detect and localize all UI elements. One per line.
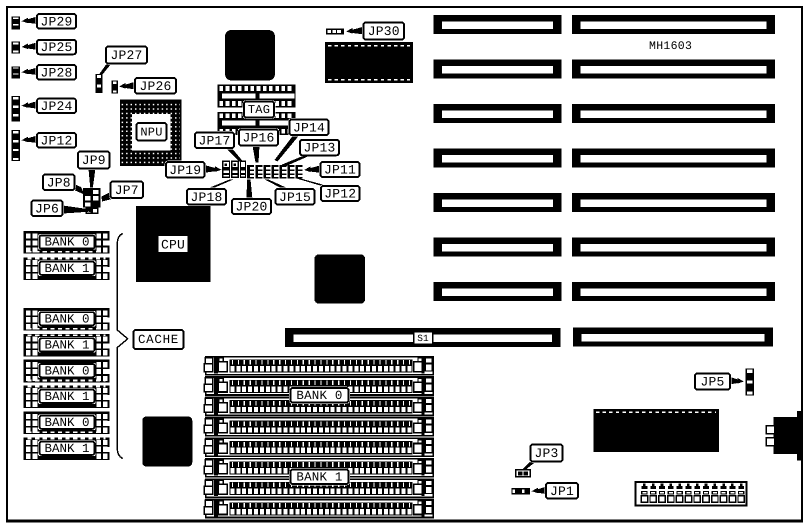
svg-text:JP12: JP12 [324, 187, 356, 202]
svg-text:NPU: NPU [140, 125, 162, 139]
svg-text:JP6: JP6 [35, 201, 59, 216]
svg-text:JP5: JP5 [700, 375, 724, 390]
svg-text:JP8: JP8 [47, 175, 71, 190]
svg-text:BANK 0: BANK 0 [44, 364, 89, 378]
svg-text:CPU: CPU [161, 237, 185, 252]
svg-text:BANK 0: BANK 0 [44, 236, 89, 250]
svg-text:JP13: JP13 [303, 141, 335, 156]
svg-text:BANK 1: BANK 1 [296, 470, 342, 484]
svg-text:JP15: JP15 [279, 190, 311, 205]
svg-text:JP29: JP29 [40, 14, 72, 29]
svg-text:CACHE: CACHE [138, 333, 179, 347]
svg-text:BANK 0: BANK 0 [296, 389, 342, 403]
svg-text:BANK 1: BANK 1 [44, 262, 89, 276]
svg-text:TAG: TAG [248, 103, 270, 117]
svg-text:JP9: JP9 [82, 153, 106, 168]
svg-text:JP14: JP14 [293, 120, 325, 135]
svg-text:S1: S1 [417, 333, 429, 344]
svg-text:JP12: JP12 [40, 133, 72, 148]
svg-text:JP18: JP18 [190, 190, 222, 205]
svg-text:JP26: JP26 [139, 79, 171, 94]
svg-text:BANK 1: BANK 1 [44, 339, 89, 353]
svg-text:BANK 0: BANK 0 [44, 416, 89, 430]
svg-text:JP19: JP19 [169, 163, 201, 178]
svg-text:JP30: JP30 [368, 24, 400, 39]
svg-text:BANK 1: BANK 1 [44, 390, 89, 404]
svg-text:JP1: JP1 [550, 484, 574, 499]
svg-text:JP3: JP3 [534, 446, 558, 461]
svg-text:JP11: JP11 [324, 163, 356, 178]
svg-text:JP17: JP17 [198, 133, 230, 148]
svg-text:JP16: JP16 [242, 131, 274, 146]
svg-text:JP24: JP24 [40, 99, 72, 114]
svg-text:JP20: JP20 [235, 200, 267, 215]
svg-text:JP28: JP28 [40, 65, 72, 80]
svg-text:BANK 0: BANK 0 [44, 313, 89, 327]
svg-text:BANK 1: BANK 1 [44, 442, 89, 456]
svg-text:JP25: JP25 [40, 40, 72, 55]
svg-text:MH1603: MH1603 [649, 40, 692, 53]
svg-text:JP27: JP27 [110, 48, 142, 63]
svg-text:JP7: JP7 [115, 183, 139, 198]
